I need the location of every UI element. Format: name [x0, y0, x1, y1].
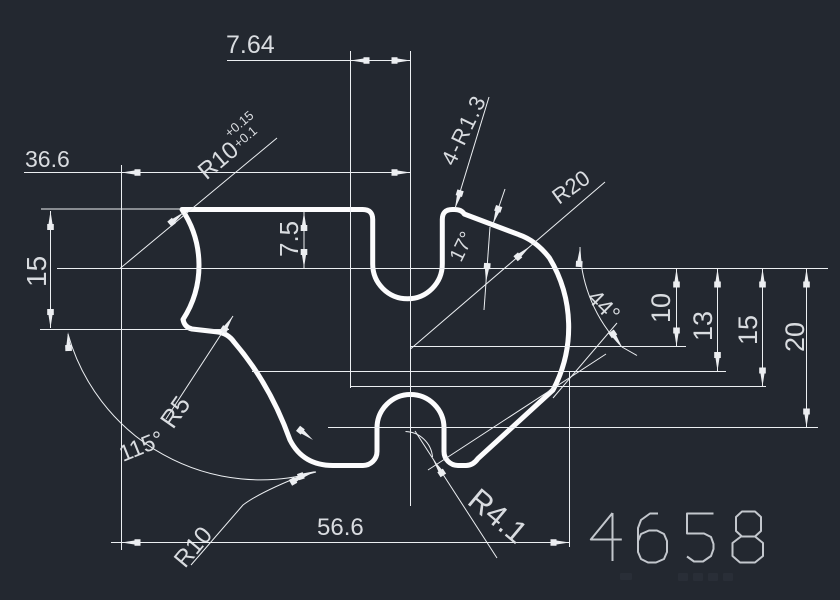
svg-text:36.6: 36.6 [25, 146, 70, 172]
svg-text:7.64: 7.64 [226, 31, 275, 59]
svg-text:13: 13 [688, 311, 718, 341]
svg-text:20: 20 [780, 322, 810, 352]
svg-text:56.6: 56.6 [317, 514, 364, 541]
svg-text:7.5: 7.5 [274, 221, 304, 257]
svg-text:15: 15 [21, 256, 52, 287]
svg-text:15: 15 [733, 315, 763, 345]
svg-text:10: 10 [646, 293, 676, 323]
